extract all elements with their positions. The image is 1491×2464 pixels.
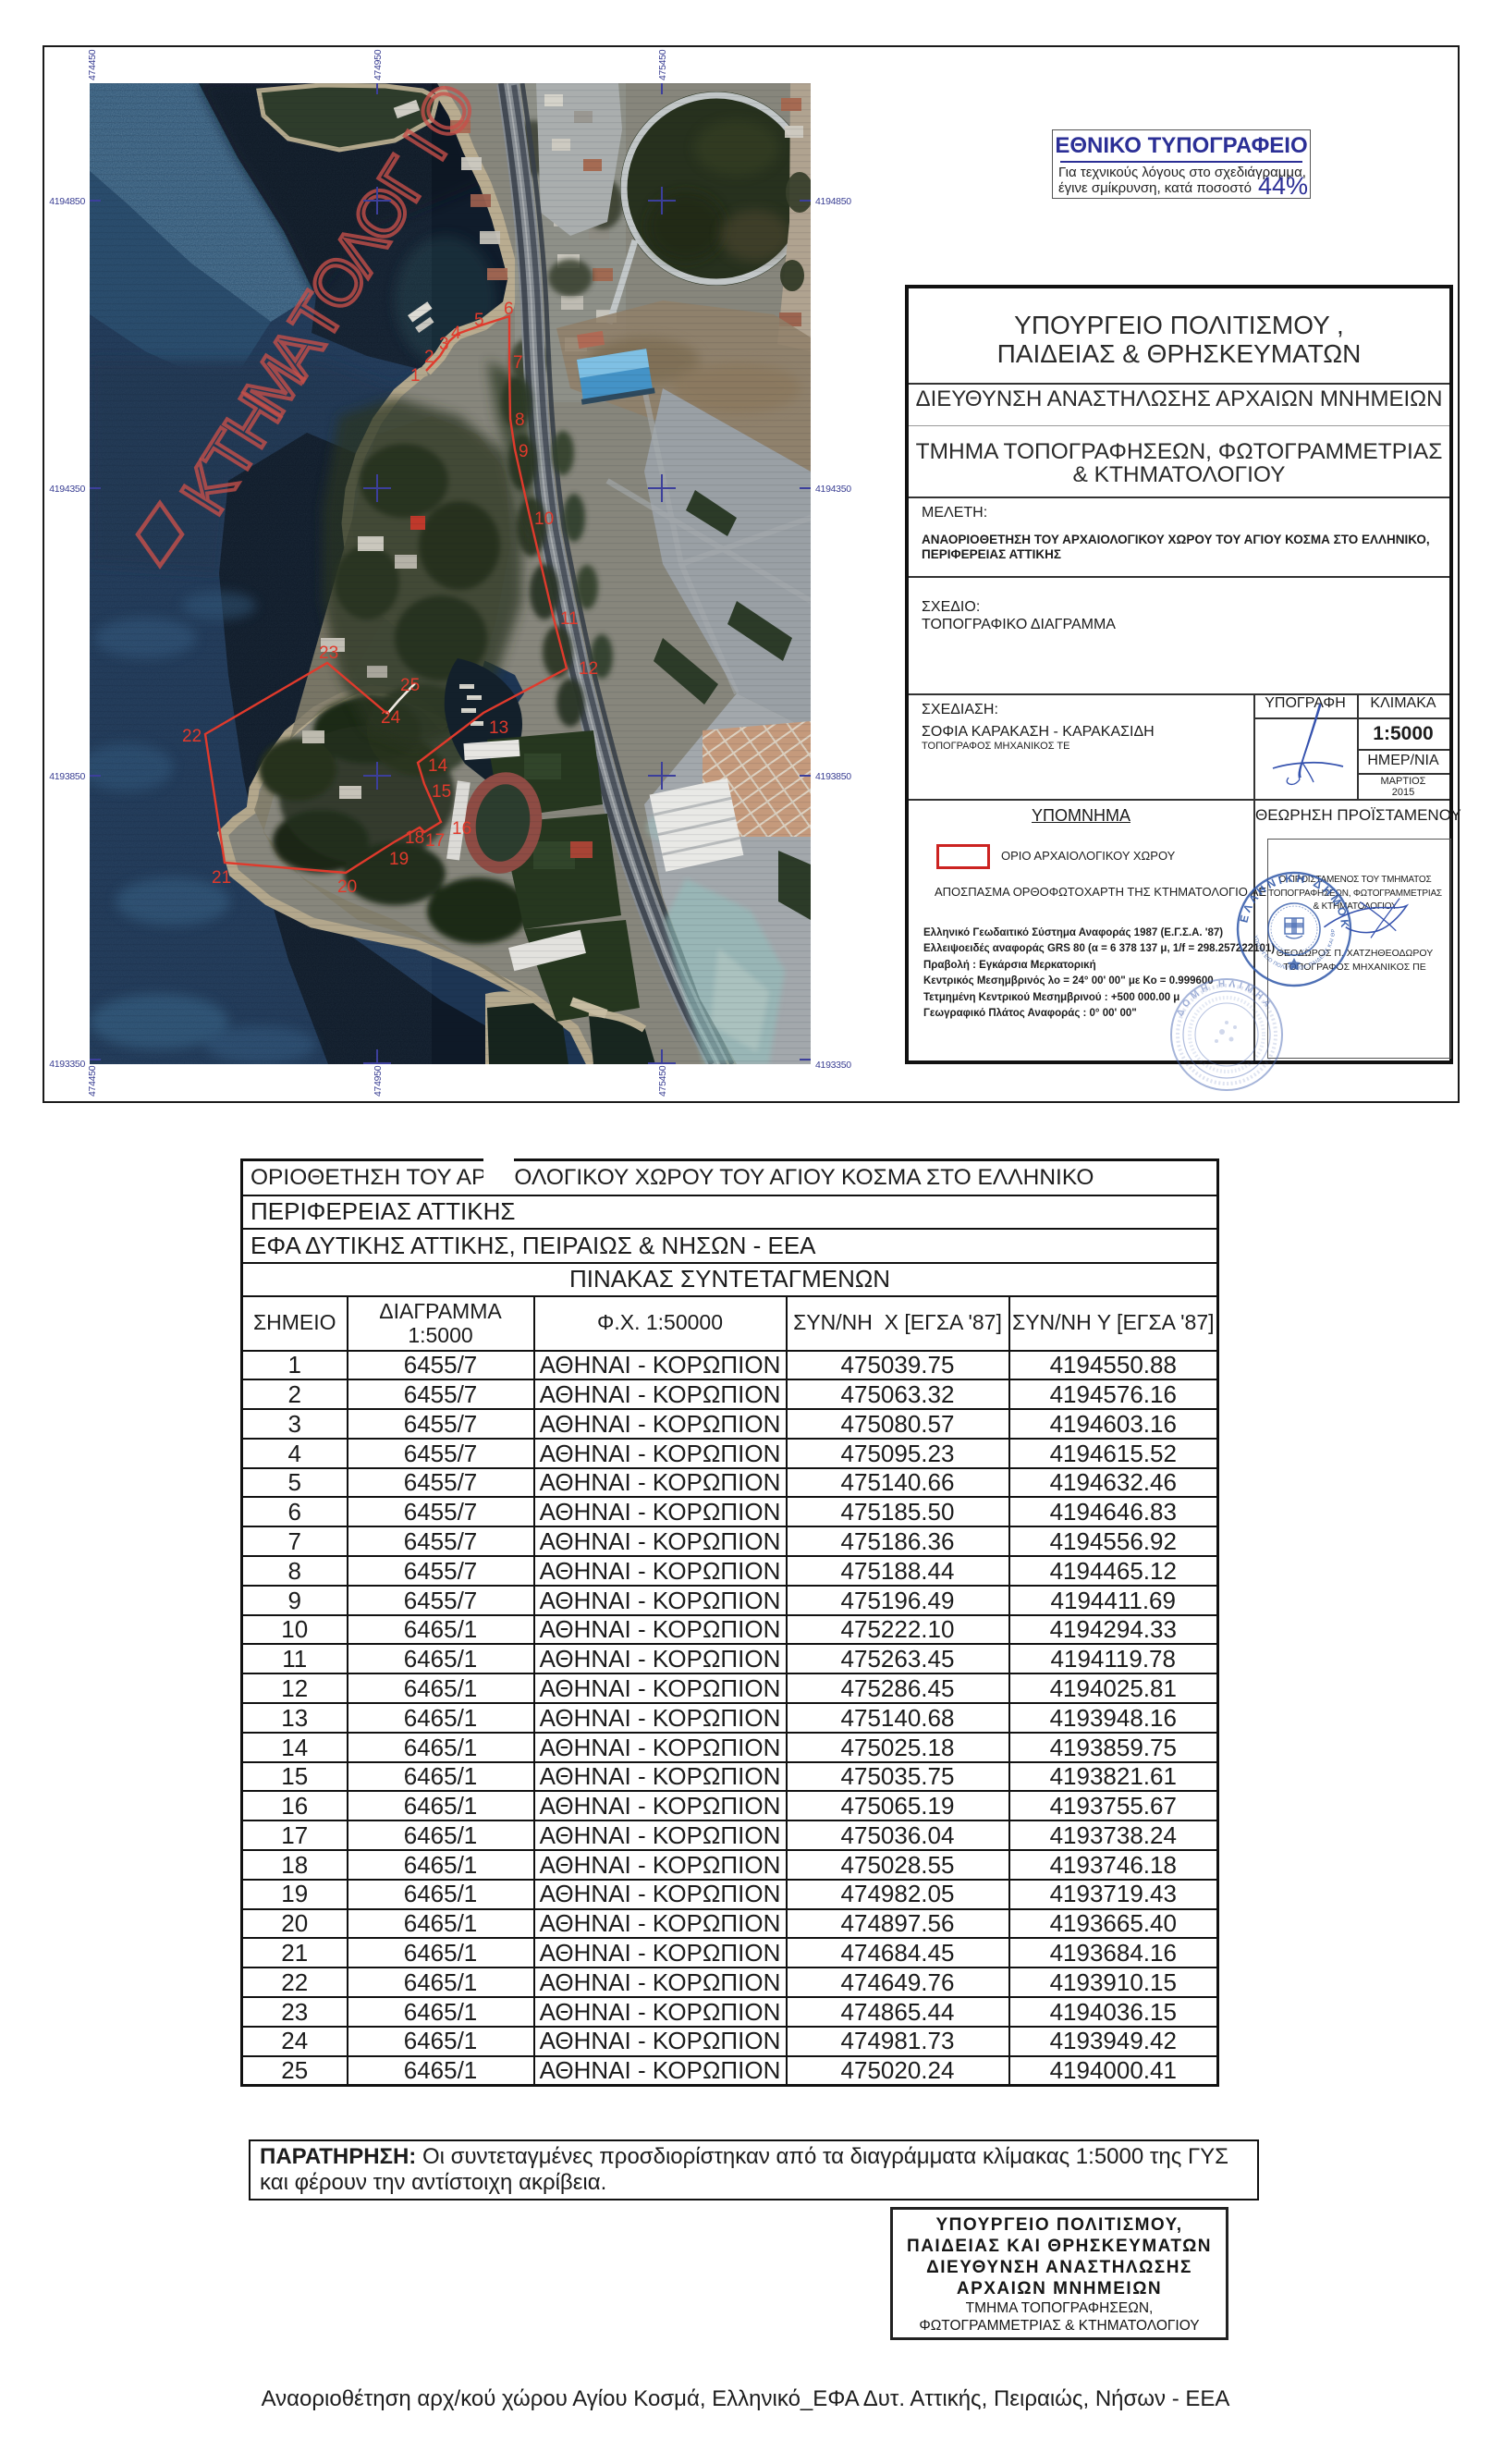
svg-text:23: 23: [319, 644, 338, 663]
svg-text:16: 16: [452, 819, 471, 839]
svg-text:4: 4: [451, 324, 461, 343]
svg-text:5: 5: [474, 311, 484, 330]
svg-text:9: 9: [519, 442, 529, 461]
svg-text:24: 24: [381, 708, 401, 728]
svg-text:19: 19: [389, 850, 409, 869]
svg-text:ΔΟΜΗ ΗΛΙΜΗΑ: ΔΟΜΗ ΗΛΙΜΗΑ: [1175, 979, 1275, 1018]
svg-text:20: 20: [337, 877, 357, 897]
svg-text:18: 18: [405, 828, 424, 848]
svg-text:10: 10: [534, 509, 554, 529]
svg-text:21: 21: [212, 868, 231, 888]
svg-text:17: 17: [425, 831, 445, 851]
svg-text:6: 6: [504, 300, 514, 319]
svg-text:3: 3: [439, 335, 449, 354]
svg-text:15: 15: [432, 782, 451, 802]
svg-text:25: 25: [400, 676, 420, 695]
svg-text:8: 8: [515, 411, 525, 430]
svg-text:22: 22: [182, 727, 202, 746]
svg-text:13: 13: [489, 718, 508, 738]
svg-text:11: 11: [560, 609, 579, 629]
svg-text:7: 7: [513, 353, 523, 373]
svg-text:1: 1: [410, 366, 421, 386]
svg-text:12: 12: [579, 659, 598, 679]
svg-text:2: 2: [424, 348, 434, 367]
svg-text:14: 14: [428, 756, 448, 776]
